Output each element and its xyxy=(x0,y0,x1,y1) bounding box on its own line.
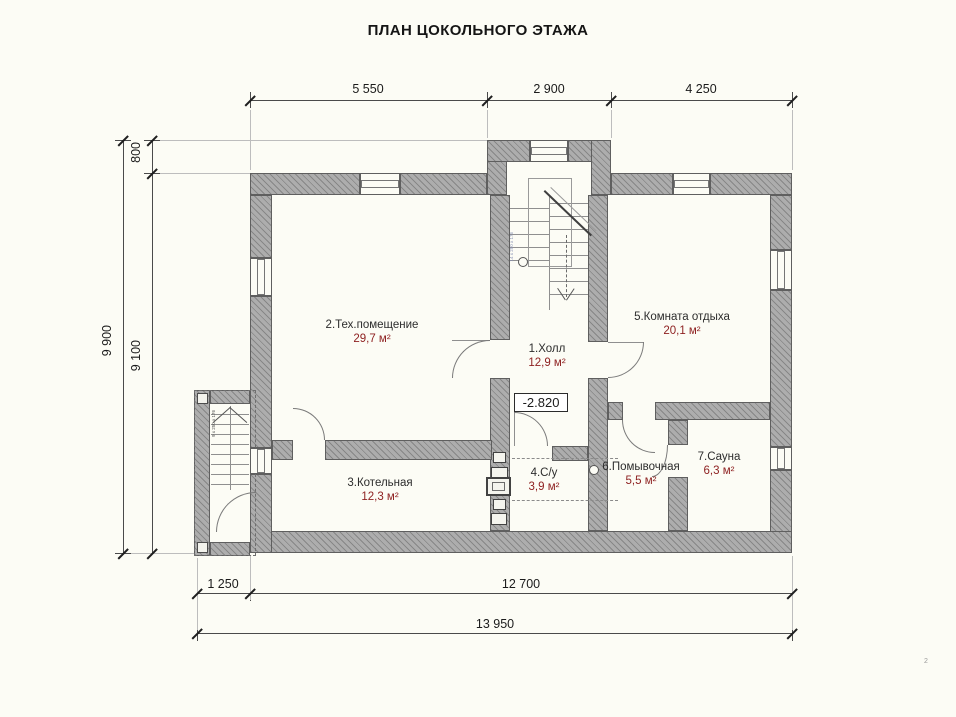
dim-bottom-porch: 1 250 xyxy=(207,577,238,591)
wall-segment xyxy=(591,140,611,195)
window-glass xyxy=(777,448,785,469)
extension-line xyxy=(160,140,487,141)
room-label-boiler: 3.Котельная 12,3 м² xyxy=(347,476,412,504)
room-label-wc: 4.С/у 3,9 м² xyxy=(529,466,560,494)
floor-plan-canvas: ПЛАН ЦОКОЛЬНОГО ЭТАЖА xyxy=(0,0,956,717)
door-frame xyxy=(257,449,265,473)
room-label-hall: 1.Холл 12,9 м² xyxy=(528,342,565,370)
door-arc xyxy=(452,340,490,378)
wall-segment xyxy=(668,420,688,445)
wall-segment xyxy=(608,402,623,420)
elevation-mark: -2.820 xyxy=(514,393,568,412)
room-area: 12,3 м² xyxy=(347,490,412,504)
dim-top-3: 4 250 xyxy=(685,82,716,96)
stair-note-porch: 9 x 250 x 176 xyxy=(211,410,216,437)
extension-line xyxy=(160,173,250,174)
window-glass xyxy=(257,259,265,295)
window-symbol xyxy=(250,258,272,296)
wall-segment xyxy=(655,402,770,420)
wall-segment xyxy=(588,378,608,531)
extension-line xyxy=(611,110,612,138)
wall-segment xyxy=(325,440,492,460)
wall-segment xyxy=(250,195,272,258)
stair-direction-line xyxy=(566,235,567,297)
extension-line xyxy=(487,110,488,138)
dimension-line xyxy=(197,633,792,634)
wall-segment xyxy=(487,140,530,162)
wall-segment xyxy=(588,195,608,342)
room-label-washroom: 6.Помывочная 5,5 м² xyxy=(602,460,680,488)
dashed-beam-line xyxy=(512,500,618,501)
door-arc xyxy=(514,412,548,446)
room-name: 4.С/у xyxy=(529,466,560,480)
window-glass xyxy=(674,180,709,188)
room-area: 6,3 м² xyxy=(698,464,741,478)
dim-top-1: 5 550 xyxy=(352,82,383,96)
dim-bottom-main: 12 700 xyxy=(502,577,540,591)
window-glass xyxy=(777,251,785,289)
window-glass xyxy=(361,180,399,188)
room-label-tech: 2.Тех.помещение 29,7 м² xyxy=(326,318,419,346)
window-symbol xyxy=(770,250,792,290)
stair-tread xyxy=(549,281,588,282)
room-label-lounge: 5.Комната отдыха 20,1 м² xyxy=(634,310,730,338)
page-number: 2 xyxy=(924,658,928,665)
wall-segment xyxy=(611,173,673,195)
boiler-box-inner xyxy=(492,482,505,491)
extension-line xyxy=(131,553,194,554)
extension-line xyxy=(792,110,793,170)
room-area: 3,9 м² xyxy=(529,480,560,494)
room-area: 29,7 м² xyxy=(326,332,419,346)
window-symbol xyxy=(673,173,710,195)
dim-left-outer: 9 900 xyxy=(100,325,114,356)
room-area: 5,5 м² xyxy=(602,474,680,488)
dimension-line xyxy=(250,100,792,101)
door-arc xyxy=(608,342,644,378)
room-area: 20,1 м² xyxy=(634,324,730,338)
wall-segment xyxy=(770,290,792,447)
dimension-line xyxy=(123,140,124,553)
wall-segment xyxy=(400,173,487,195)
porch-post xyxy=(197,542,208,553)
wall-segment xyxy=(770,195,792,250)
room-name: 7.Сауна xyxy=(698,450,741,464)
room-name: 6.Помывочная xyxy=(602,460,680,474)
wall-segment xyxy=(250,173,360,195)
room-area: 12,9 м² xyxy=(528,356,565,370)
fixture-box xyxy=(493,499,506,510)
window-symbol xyxy=(360,173,400,195)
wall-segment xyxy=(710,173,792,195)
stair-note-main: 14 x 250 x 176 xyxy=(509,232,514,262)
dim-left-inner: 9 100 xyxy=(129,340,143,371)
door-arc xyxy=(622,420,655,453)
window-symbol xyxy=(530,140,568,162)
room-name: 3.Котельная xyxy=(347,476,412,490)
wall-segment xyxy=(490,195,510,340)
dimension-line xyxy=(152,140,153,553)
dimension-line xyxy=(197,593,792,594)
dim-top-2: 2 900 xyxy=(533,82,564,96)
page-title: ПЛАН ЦОКОЛЬНОГО ЭТАЖА xyxy=(0,22,956,39)
room-name: 1.Холл xyxy=(528,342,565,356)
window-glass xyxy=(531,147,567,155)
vent-hole xyxy=(589,465,599,475)
room-label-sauna: 7.Сауна 6,3 м² xyxy=(698,450,741,478)
dim-bottom-total: 13 950 xyxy=(476,617,514,631)
door-opening xyxy=(250,448,272,474)
wall-segment xyxy=(272,440,293,460)
stair-start-marker xyxy=(518,257,528,267)
stair-tread xyxy=(549,268,588,269)
room-name: 5.Комната отдыха xyxy=(634,310,730,324)
dashed-beam-line xyxy=(512,458,618,459)
door-arc xyxy=(293,408,325,440)
window-symbol xyxy=(770,447,792,470)
room-name: 2.Тех.помещение xyxy=(326,318,419,332)
wall-segment xyxy=(250,531,792,553)
fixture-box xyxy=(491,513,507,525)
fixture-box xyxy=(493,452,506,463)
dim-left-inner-top: 800 xyxy=(129,142,143,163)
boiler-box xyxy=(486,477,511,496)
porch-post xyxy=(197,393,208,404)
